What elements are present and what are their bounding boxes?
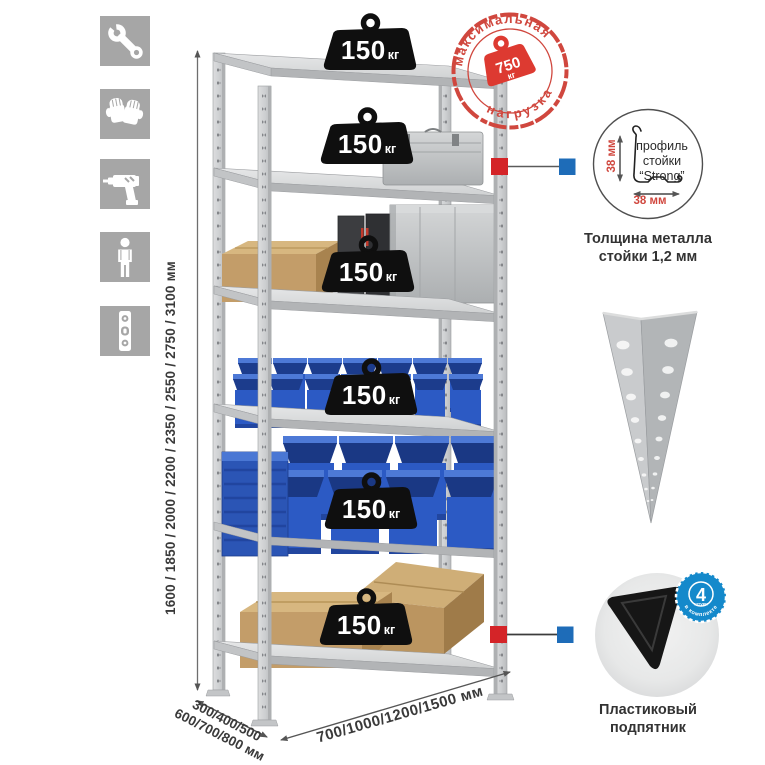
drill-icon: [100, 159, 150, 209]
load-value: 150: [341, 35, 386, 65]
profile-caption: Толщина металла стойки 1,2 мм: [572, 231, 724, 266]
wrench-icon: [100, 16, 150, 66]
level-icon: [100, 306, 150, 356]
blue-marker-bottom: [557, 627, 574, 644]
profile-description: профиль стойки “Strong”: [625, 139, 699, 184]
load-value: 150: [337, 610, 382, 640]
corner-post-illustration: [603, 312, 697, 523]
load-unit: кг: [385, 142, 396, 156]
foot-caption-line1: Пластиковый: [572, 702, 724, 720]
profile-callout-connector: [491, 158, 576, 175]
profile-caption-line2: стойки 1,2 мм: [572, 249, 724, 267]
included-count-badge: 4 штуки в комплекте: [676, 572, 726, 622]
foot-caption: Пластиковый подпятник: [572, 702, 724, 737]
load-unit: кг: [388, 48, 399, 62]
shelf-load-weight-2: 150кг: [317, 107, 417, 169]
load-unit: кг: [386, 270, 397, 284]
load-unit: кг: [389, 507, 400, 521]
shelf-load-weight-6: 150кг: [316, 588, 416, 650]
profile-line1: профиль: [625, 139, 699, 154]
load-value: 150: [342, 380, 387, 410]
profile-dim-vertical: 38 мм: [606, 127, 618, 185]
profile-dim-horizontal: 38 мм: [615, 195, 685, 207]
plastic-foot-illustration: 4 штуки в комплекте: [595, 572, 726, 697]
person-icon: [100, 232, 150, 282]
badge-sub: штуки: [694, 602, 708, 607]
red-marker-top: [491, 158, 508, 175]
foot-callout-connector: [490, 626, 574, 643]
shelving-infographic: 4 штуки в комплекте: [0, 0, 765, 765]
load-value: 150: [342, 494, 387, 524]
shelf-load-weight-3: 150кг: [318, 235, 418, 297]
height-dimension-label: 1600 / 1850 / 2000 / 2200 / 2350 / 2550 …: [163, 188, 181, 688]
load-unit: кг: [384, 623, 395, 637]
red-marker-bottom: [490, 626, 507, 643]
blue-marker-top: [559, 159, 576, 176]
load-unit: кг: [389, 393, 400, 407]
profile-line2: стойки: [625, 154, 699, 169]
load-value: 150: [339, 257, 384, 287]
load-value: 150: [338, 129, 383, 159]
stamp-weight-icon: 750 кг: [475, 30, 536, 87]
profile-caption-line1: Толщина металла: [572, 231, 724, 249]
gloves-icon: [100, 89, 150, 139]
foot-caption-line2: подпятник: [572, 720, 724, 738]
shelf-load-weight-5: 150кг: [321, 472, 421, 534]
max-load-stamp: максимальная нагрузка 750 кг: [447, 8, 574, 135]
shelf-load-weight-1: 150кг: [320, 13, 420, 75]
post-rear-left: [206, 53, 230, 696]
shelf-load-weight-4: 150кг: [321, 358, 421, 420]
profile-line3: “Strong”: [625, 169, 699, 184]
